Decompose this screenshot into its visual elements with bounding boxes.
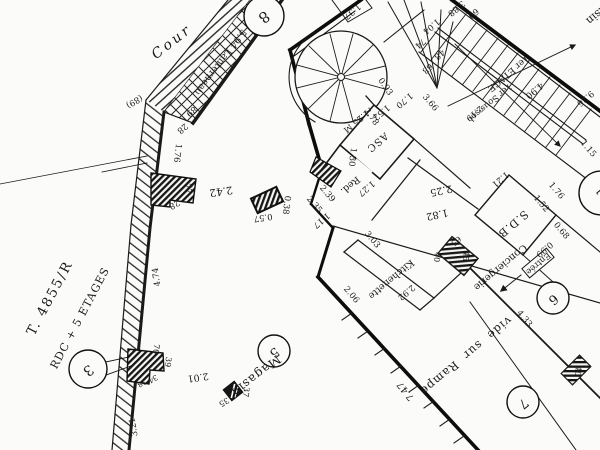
dim-57: 57: [182, 182, 193, 194]
dim-40b: 40: [573, 365, 583, 376]
dim-0-68: 0.68: [551, 221, 571, 242]
dim-37: 37: [241, 386, 251, 397]
dim-2-39: 2.39: [317, 184, 337, 205]
dim-2-19: 2.19: [464, 103, 485, 123]
dim-4-33: 4.33: [514, 309, 534, 330]
dim-2-42: 2.42: [209, 183, 234, 198]
label-magasin-right: Magasin: [584, 0, 600, 27]
dim-4-90: 4.90: [523, 80, 545, 101]
label-sdb: S.D.B: [495, 208, 531, 241]
dim-1-15: 1.15: [578, 139, 598, 160]
dim-2-35: 2.35: [304, 195, 324, 216]
dim-2-92: 2.92: [396, 282, 417, 302]
dim-2-25: 2.25: [429, 182, 453, 197]
dim-89p: (89): [124, 92, 145, 110]
corner-pier: [310, 157, 341, 187]
dim-2-01: 2.01: [187, 370, 209, 384]
label-vide-sur-rampe: vide sur Rampe: [417, 313, 515, 398]
dim-70: 70: [151, 343, 161, 354]
spiral-staircase: [289, 0, 387, 123]
dim-3-03: 3.03: [362, 230, 382, 251]
dim-3-66: 3.66: [420, 93, 440, 114]
interior-walls: [322, 96, 600, 450]
dim-0-57: 0.57: [253, 211, 273, 224]
dim-1-17: 1.17: [311, 210, 332, 230]
dim-2-06: 2.06: [341, 285, 361, 306]
dim-1-70: 1.70: [394, 90, 415, 110]
floor-plan-page: Cour 5.94 Lanterneau T. 4855/R RDC + 5 E…: [0, 0, 600, 450]
label-conciergerie: Conciergerie: [471, 242, 529, 293]
dim-4-74: 4.74: [151, 267, 164, 287]
dim-1-76: 1.76: [171, 143, 183, 163]
dim-39: 39: [163, 356, 173, 367]
dim-1-21: 1.21: [490, 169, 511, 189]
dim-1-76b: 1.76: [546, 181, 566, 202]
dim-3-21: 3.21: [128, 417, 141, 437]
dim-40: 40: [432, 251, 442, 262]
dim-45: 45: [461, 250, 471, 261]
property-line: [0, 156, 147, 184]
dim-1-52b: 1.52: [531, 194, 551, 215]
column-057: [251, 187, 283, 213]
floor-plan-drawing: Cour 5.94 Lanterneau T. 4855/R RDC + 5 E…: [0, 0, 600, 450]
dim-1-82: 1.82: [425, 206, 449, 221]
dim-28b: 28: [175, 121, 190, 136]
